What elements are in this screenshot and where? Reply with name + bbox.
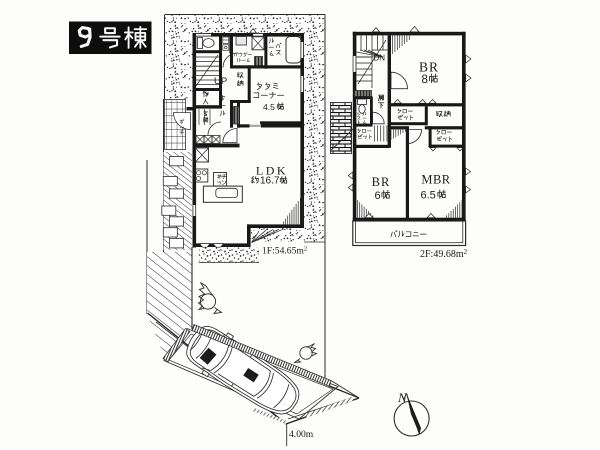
- svg-text:6: 6: [375, 190, 381, 202]
- svg-text:BR: BR: [372, 175, 391, 189]
- svg-text:N: N: [397, 390, 408, 405]
- svg-text:8: 8: [422, 74, 428, 86]
- svg-text:16.7: 16.7: [260, 176, 280, 187]
- svg-text:1F:54.65m2: 1F:54.65m2: [262, 246, 307, 257]
- svg-text:4.00m: 4.00m: [289, 429, 314, 440]
- svg-text:BR: BR: [419, 60, 439, 75]
- svg-text:2F:49.68m2: 2F:49.68m2: [420, 248, 468, 260]
- svg-text:MBR: MBR: [421, 173, 450, 187]
- svg-text:DN: DN: [374, 54, 386, 63]
- svg-text:6.5: 6.5: [421, 190, 436, 202]
- svg-text:UP: UP: [214, 76, 227, 87]
- svg-text:4.5: 4.5: [263, 102, 275, 112]
